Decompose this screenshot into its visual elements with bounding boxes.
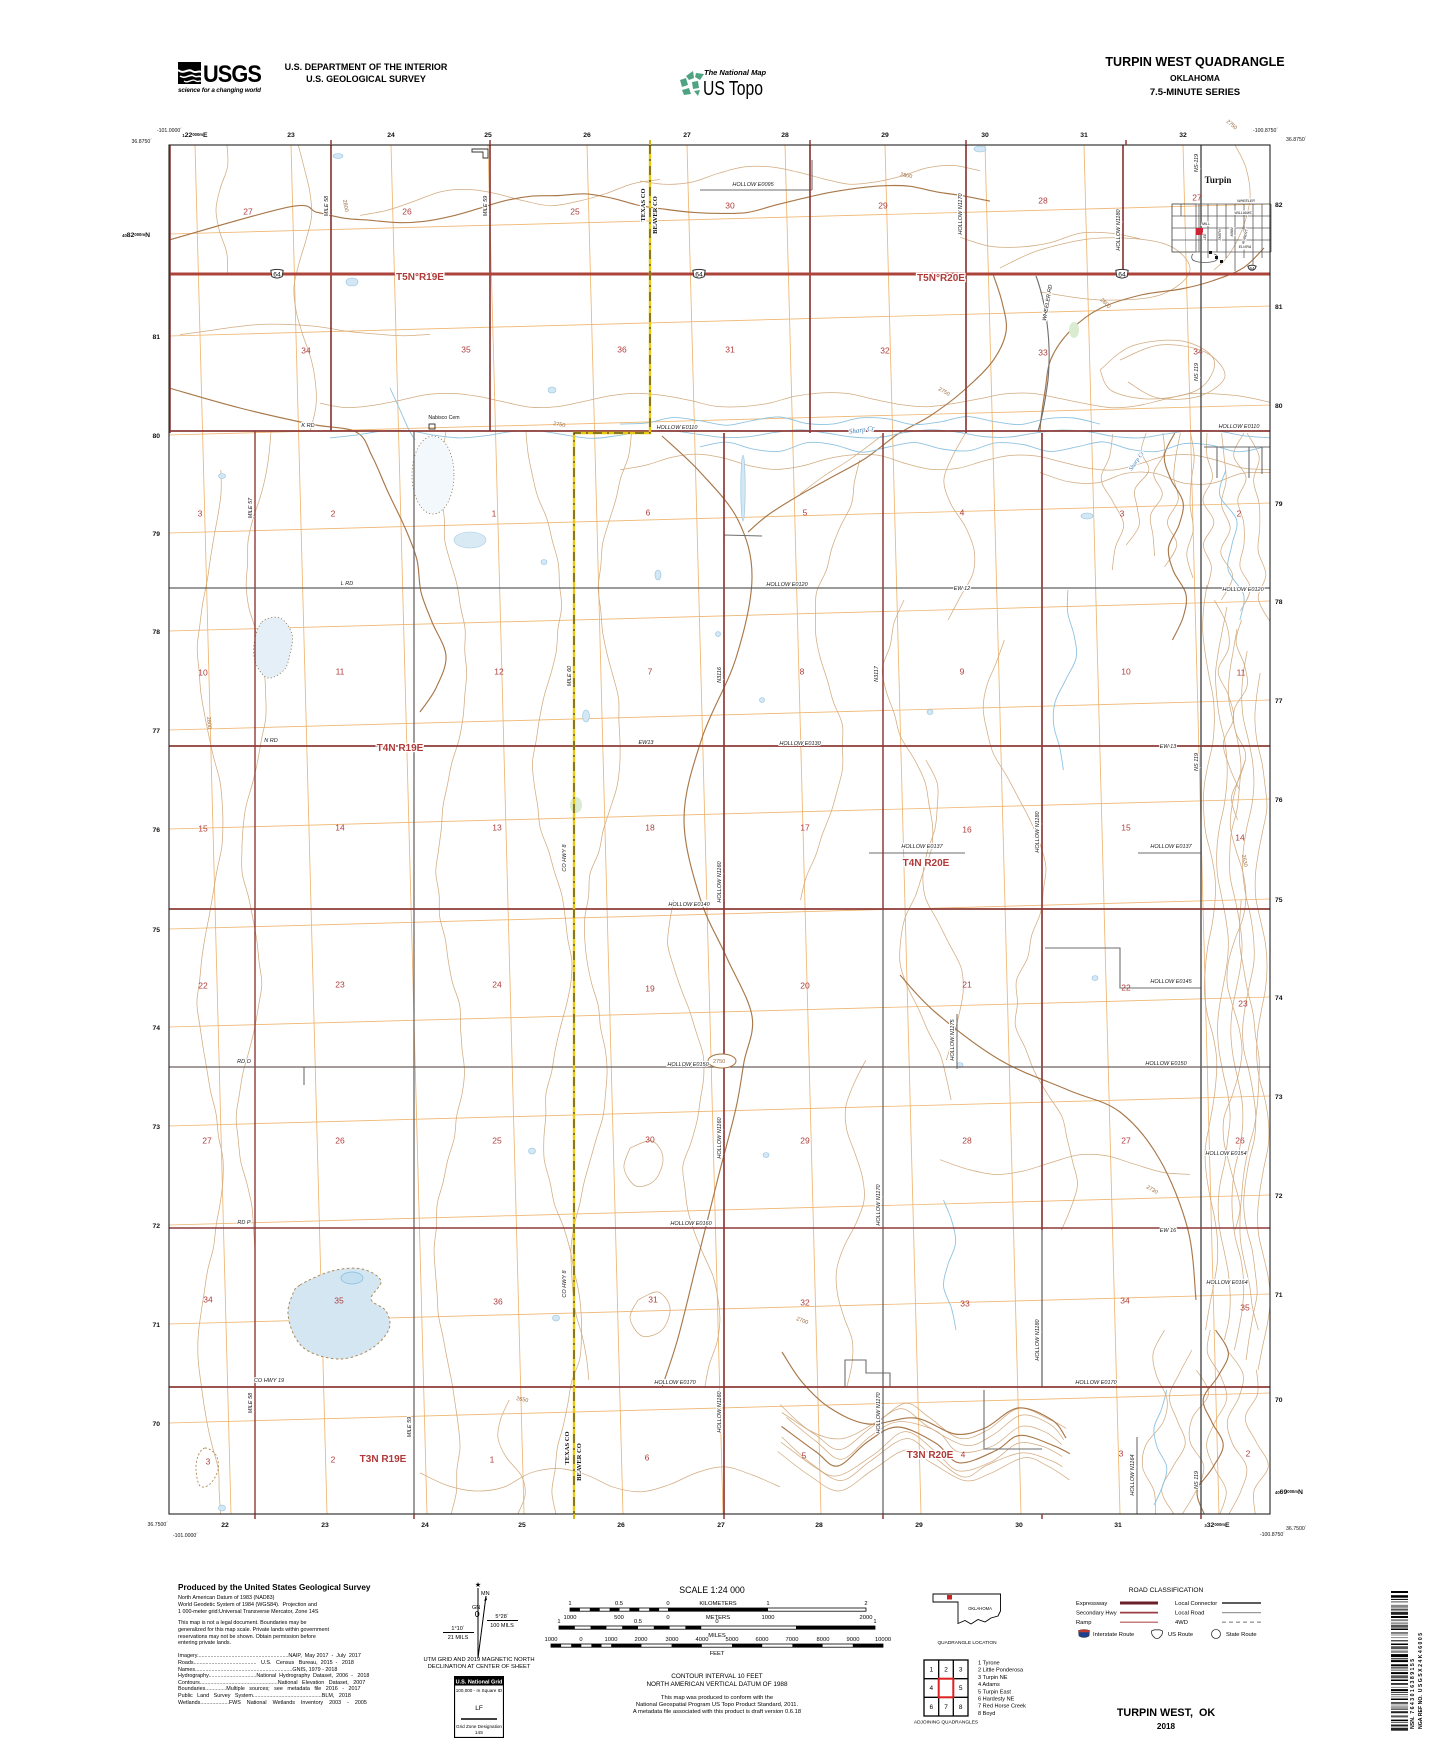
svg-text:0: 0 <box>715 1619 718 1625</box>
svg-text:FEET: FEET <box>710 1651 725 1657</box>
svg-text:2: 2 <box>944 1667 948 1674</box>
svg-text:7: 7 <box>944 1704 948 1711</box>
svg-text:0.5: 0.5 <box>615 1601 623 1607</box>
svg-text:KILOMETERS: KILOMETERS <box>699 1601 736 1607</box>
svg-text:Interstate Route: Interstate Route <box>1093 1632 1134 1638</box>
svg-text:6: 6 <box>929 1704 933 1711</box>
svg-text:3: 3 <box>959 1667 963 1674</box>
svg-text:3 Turpin NE: 3 Turpin NE <box>978 1675 1008 1681</box>
svg-text:7 Red Horse Creek: 7 Red Horse Creek <box>978 1704 1026 1710</box>
svg-text:A metadata file associated wit: A metadata file associated with this pro… <box>633 1709 801 1715</box>
svg-text:1: 1 <box>557 1619 560 1625</box>
svg-text:2018: 2018 <box>1157 1722 1176 1731</box>
svg-text:7000: 7000 <box>786 1637 799 1643</box>
svg-text:8000: 8000 <box>817 1637 830 1643</box>
svg-text:1 Tyrone: 1 Tyrone <box>978 1661 1000 1667</box>
svg-text:4WD: 4WD <box>1175 1620 1188 1626</box>
svg-text:5: 5 <box>959 1685 963 1692</box>
svg-text:NORTH AMERICAN VERTICAL DATUM: NORTH AMERICAN VERTICAL DATUM OF 1988 <box>646 1681 788 1688</box>
svg-text:4 Adams: 4 Adams <box>978 1682 1000 1688</box>
svg-text:0.5: 0.5 <box>634 1619 642 1625</box>
svg-text:1: 1 <box>929 1667 933 1674</box>
svg-text:State Route: State Route <box>1226 1632 1257 1638</box>
svg-text:NGA REF NO. U S G S X 2 4 K 4: NGA REF NO. U S G S X 2 4 K 4 6 0 0 5 <box>1418 1633 1424 1729</box>
svg-text:0: 0 <box>579 1637 582 1643</box>
svg-text:This map was produced to confo: This map was produced to conform with th… <box>661 1695 773 1701</box>
svg-text:8 Boyd: 8 Boyd <box>978 1711 995 1717</box>
svg-text:1: 1 <box>766 1601 769 1607</box>
svg-text:0: 0 <box>666 1615 669 1621</box>
svg-text:QUADRANGLE LOCATION: QUADRANGLE LOCATION <box>937 1640 997 1646</box>
svg-text:CONTOUR INTERVAL 10 FEET: CONTOUR INTERVAL 10 FEET <box>671 1673 762 1680</box>
svg-text:8: 8 <box>959 1704 963 1711</box>
svg-text:1000: 1000 <box>605 1637 618 1643</box>
svg-text:SCALE 1:24 000: SCALE 1:24 000 <box>679 1585 745 1595</box>
svg-text:Local Connector: Local Connector <box>1175 1601 1217 1607</box>
svg-text:5 Turpin East: 5 Turpin East <box>978 1689 1011 1695</box>
svg-text:OKLAHOMA: OKLAHOMA <box>968 1606 992 1611</box>
svg-text:6000: 6000 <box>756 1637 769 1643</box>
svg-text:NSN. 7 6 4 3 0 1 6 3 8 9 1 5: NSN. 7 6 4 3 0 1 6 3 8 9 1 5 5 <box>1410 1659 1416 1729</box>
svg-text:4: 4 <box>929 1685 933 1692</box>
svg-text:3000: 3000 <box>666 1637 679 1643</box>
svg-text:Ramp: Ramp <box>1076 1620 1091 1626</box>
svg-text:6 Hardesty NE: 6 Hardesty NE <box>978 1697 1015 1703</box>
svg-text:10000: 10000 <box>875 1637 891 1643</box>
svg-text:Local Road: Local Road <box>1175 1611 1204 1617</box>
svg-text:2000: 2000 <box>635 1637 648 1643</box>
svg-text:2 Little Ponderosa: 2 Little Ponderosa <box>978 1668 1024 1674</box>
svg-text:1: 1 <box>568 1601 571 1607</box>
svg-text:ADJOINING QUADRANGLES: ADJOINING QUADRANGLES <box>914 1720 978 1726</box>
svg-text:500: 500 <box>614 1615 624 1621</box>
svg-text:4000: 4000 <box>696 1637 709 1643</box>
svg-text:0: 0 <box>666 1601 669 1607</box>
svg-text:1: 1 <box>873 1619 876 1625</box>
svg-text:2: 2 <box>864 1601 867 1607</box>
svg-text:TURPIN WEST, OK: TURPIN WEST, OK <box>1117 1707 1216 1719</box>
svg-text:1000: 1000 <box>762 1615 775 1621</box>
svg-text:Secondary Hwy: Secondary Hwy <box>1076 1611 1117 1617</box>
svg-text:ROAD CLASSIFICATION: ROAD CLASSIFICATION <box>1129 1587 1204 1594</box>
svg-text:Expressway: Expressway <box>1076 1601 1107 1607</box>
svg-text:9000: 9000 <box>847 1637 860 1643</box>
svg-text:2000: 2000 <box>860 1615 873 1621</box>
svg-text:MILES: MILES <box>708 1633 726 1639</box>
svg-text:1000: 1000 <box>545 1637 558 1643</box>
svg-text:US Route: US Route <box>1168 1632 1193 1638</box>
svg-text:National Geospatial Program US: National Geospatial Program US Topo Prod… <box>636 1702 799 1708</box>
svg-text:1000: 1000 <box>564 1615 577 1621</box>
svg-text:5000: 5000 <box>726 1637 739 1643</box>
